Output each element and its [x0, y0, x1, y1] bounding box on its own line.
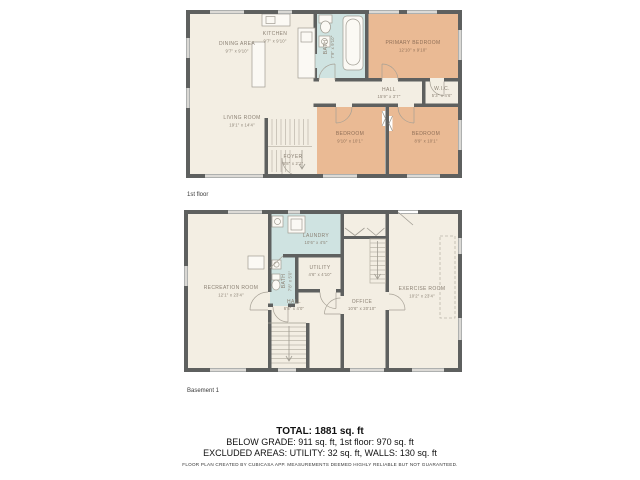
foyer-dims: 6'8" x 2'1": [283, 161, 304, 166]
area-breakdown-text: BELOW GRADE: 911 sq. ft, 1st floor: 970 …: [0, 437, 640, 448]
hall-label: HALL: [382, 87, 396, 93]
wic-label: W.I.C.: [434, 86, 450, 92]
dining-area-dims: 9'7" x 9'10": [225, 49, 248, 54]
first-floor-plan: DINING AREA 9'7" x 9'10" KITCHEN 9'7" x …: [186, 10, 462, 178]
exercise-room-dims: 10'2" x 23'4": [409, 294, 435, 299]
area-summary: TOTAL: 1881 sq. ft BELOW GRADE: 911 sq. …: [0, 426, 640, 467]
bedroom2-label: BEDROOM: [412, 131, 440, 137]
bedroom1-dims: 9'10" x 10'1": [337, 139, 363, 144]
basement-hall-label: HALL: [287, 299, 301, 305]
basement-bath-dims: 7'8" x 5'0": [288, 270, 293, 291]
utility-label: UTILITY: [309, 265, 330, 271]
living-room-label: LIVING ROOM: [223, 115, 260, 121]
recreation-room-label: RECREATION ROOM: [204, 285, 259, 291]
basement-toilet-icon: [272, 274, 280, 290]
office-label: OFFICE: [352, 299, 373, 305]
hall-dims: 15'9" x 3'7": [377, 94, 400, 99]
wic-dims: 5'3" x 4'6": [432, 93, 453, 98]
primary-bedroom-dims: 12'10" x 9'10": [399, 48, 427, 53]
bedroom2-dims: 8'9" x 10'1": [414, 139, 437, 144]
upper-stairs-icon: [370, 239, 386, 283]
laundry-label: LAUNDRY: [303, 233, 330, 239]
total-area-text: TOTAL: 1881 sq. ft: [0, 426, 640, 437]
laundry-sink-icon: [272, 216, 283, 227]
bathtub-icon: [343, 16, 363, 70]
utility-dims: 4'6" x 4'10": [308, 272, 331, 277]
basement-hall-dims: 6'8" x 4'0": [284, 306, 305, 311]
recreation-room-dims: 12'1" x 23'4": [218, 293, 244, 298]
bath-dims: 7'9" x 9'10": [330, 35, 335, 58]
primary-bedroom-label: PRIMARY BEDROOM: [385, 40, 440, 46]
bath-label: BATH: [323, 40, 329, 54]
living-room-dims: 19'1" x 14'4": [229, 123, 255, 128]
toilet-icon: [319, 15, 332, 33]
first-floor-caption: 1st floor: [187, 192, 208, 198]
basement-caption: Basement 1: [187, 388, 219, 394]
dining-area-label: DINING AREA: [219, 41, 255, 47]
basement-bath-label: BATH: [281, 274, 287, 288]
foyer-label: FOYER: [284, 154, 303, 160]
basement-plan: RECREATION ROOM 12'1" x 23'4" LAUNDRY 10…: [184, 210, 462, 372]
washer-icon: [288, 216, 305, 233]
laundry-dims: 10'6" x 4'5": [304, 240, 327, 245]
bedroom1-label: BEDROOM: [336, 131, 364, 137]
kitchen-label: KITCHEN: [263, 31, 287, 37]
cabinet-icon: [248, 256, 264, 269]
excluded-areas-text: EXCLUDED AREAS: UTILITY: 32 sq. ft, WALL…: [0, 448, 640, 459]
disclaimer-text: FLOOR PLAN CREATED BY CUBICASA APP. MEAS…: [0, 462, 640, 467]
floorplan-page: DINING AREA 9'7" x 9'10" KITCHEN 9'7" x …: [0, 0, 640, 480]
kitchen-island: [252, 42, 265, 87]
exercise-room-label: EXERCISE ROOM: [399, 286, 446, 292]
office-dims: 10'6" x 20'10": [348, 306, 376, 311]
kitchen-dims: 9'7" x 9'10": [263, 39, 286, 44]
